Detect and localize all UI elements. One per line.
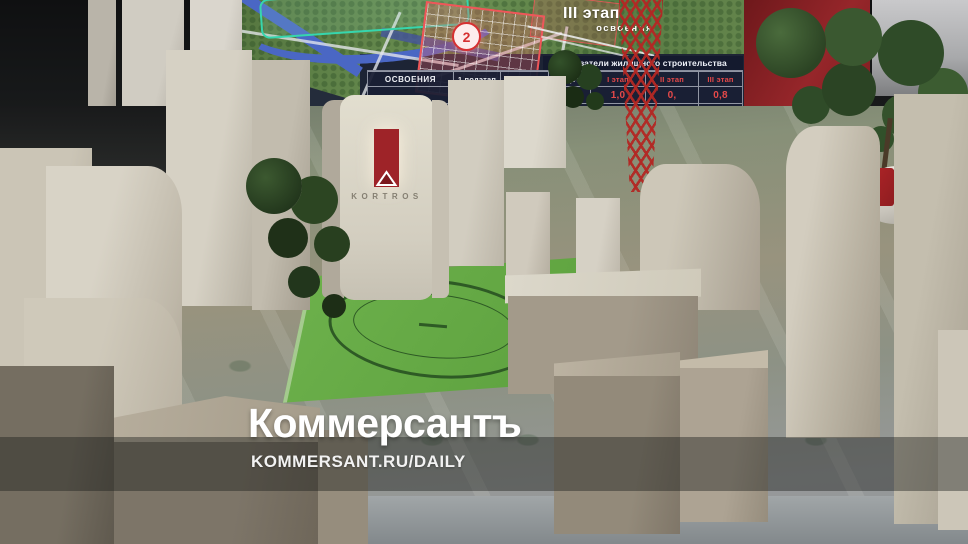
table-cell: 0,8	[698, 86, 742, 103]
tree-foliage	[756, 8, 826, 78]
table-header-cell: освоения	[368, 71, 453, 86]
model-building	[786, 126, 880, 438]
district-number: 2	[463, 29, 471, 45]
watermark-url-text: KOMMERSANT.RU/DAILY	[251, 452, 466, 472]
district-number-badge: 2	[452, 22, 481, 51]
watermark-logo-text: Коммерсантъ	[248, 403, 521, 444]
kortros-tower-right-face	[432, 100, 449, 298]
tree-foliage	[246, 158, 302, 214]
kortros-logo-icon	[374, 129, 399, 187]
model-building	[576, 198, 620, 280]
model-building	[448, 80, 504, 266]
shelf-unit	[872, 0, 968, 96]
kortros-tower: KORTROS	[340, 95, 434, 300]
table-header-cell: III этап	[698, 71, 742, 86]
exhibition-city-model-photo: 2 III этап освоения Показатели жилищного…	[0, 0, 968, 544]
kortros-brand-label: KORTROS	[340, 192, 434, 201]
model-building	[504, 76, 566, 168]
model-building	[938, 330, 968, 530]
